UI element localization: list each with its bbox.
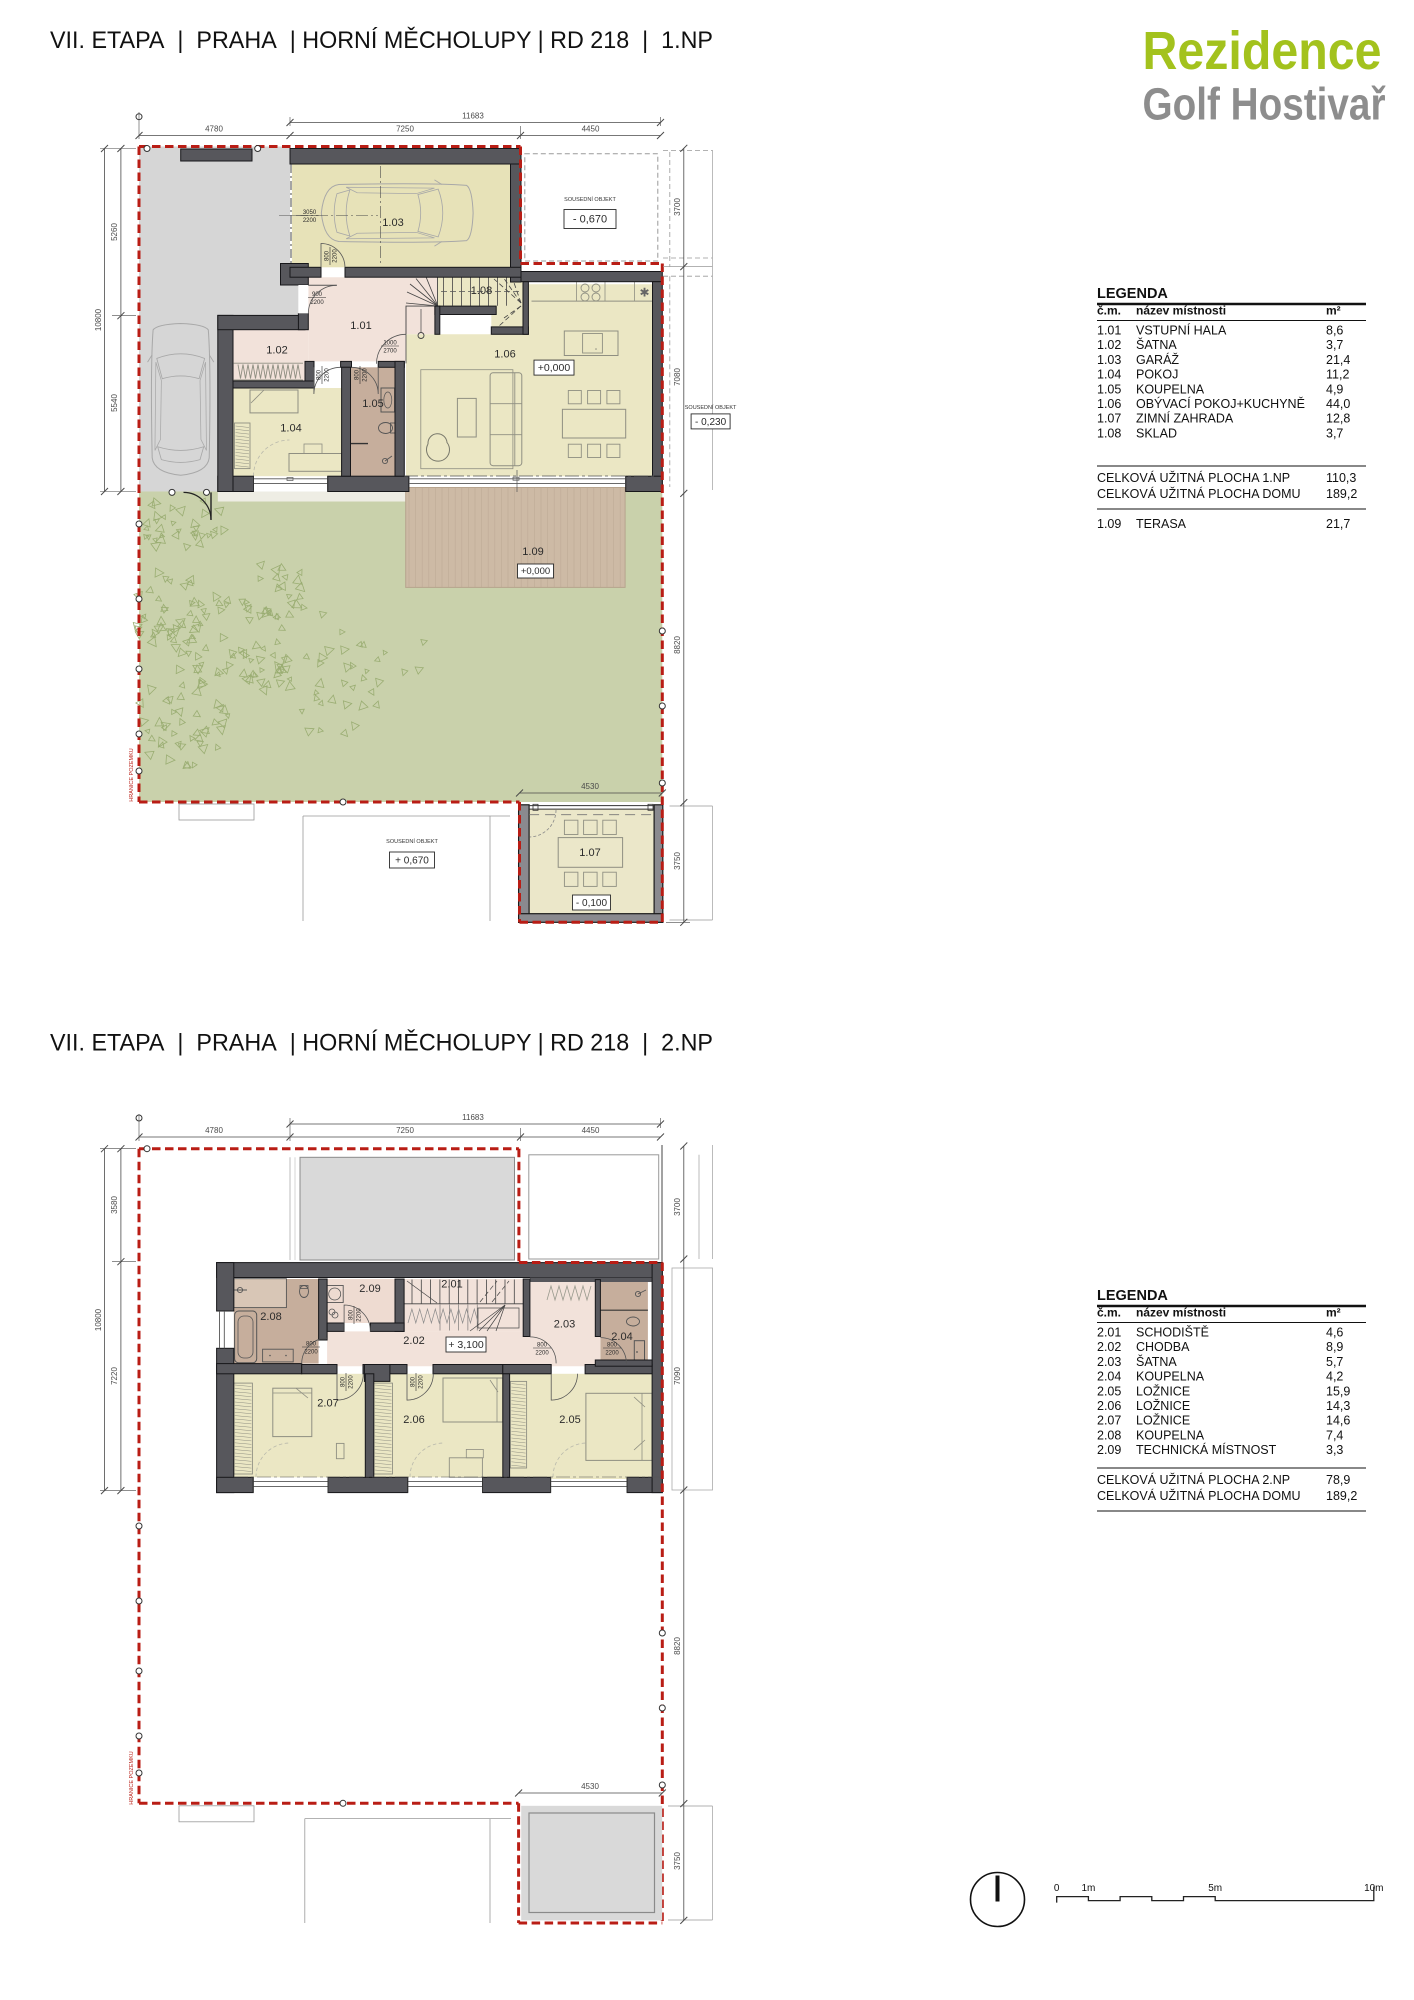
svg-text:2200: 2200 [333,249,339,263]
svg-text:21,7: 21,7 [1326,517,1350,531]
svg-text:5m: 5m [1208,1883,1222,1894]
svg-text:7250: 7250 [396,1126,414,1135]
svg-text:11683: 11683 [462,1113,484,1122]
svg-text:SOUSEDNÍ OBJEKT: SOUSEDNÍ OBJEKT [564,196,616,203]
svg-text:2.01: 2.01 [1097,1326,1121,1340]
svg-text:CELKOVÁ UŽITNÁ PLOCHA 2.NP: CELKOVÁ UŽITNÁ PLOCHA 2.NP [1097,1472,1290,1487]
svg-text:1.06: 1.06 [494,349,515,361]
svg-text:CHODBA: CHODBA [1136,1340,1190,1354]
svg-text:2.09: 2.09 [359,1283,380,1295]
svg-text:2200: 2200 [349,1375,355,1389]
svg-text:KOUPELNA: KOUPELNA [1136,382,1205,396]
svg-text:2.03: 2.03 [554,1319,575,1331]
svg-text:2.06: 2.06 [1097,1399,1121,1413]
svg-text:2.05: 2.05 [1097,1384,1121,1398]
svg-text:2200: 2200 [304,1350,318,1356]
svg-text:3,3: 3,3 [1326,1443,1343,1457]
svg-text:1.01: 1.01 [1097,324,1121,338]
svg-text:1.02: 1.02 [266,345,287,357]
svg-text:800: 800 [341,1376,347,1387]
svg-text:4,6: 4,6 [1326,1326,1343,1340]
svg-text:8,6: 8,6 [1326,324,1343,338]
svg-text:2200: 2200 [605,1351,619,1357]
svg-text:1.04: 1.04 [1097,368,1121,382]
svg-text:4530: 4530 [581,1782,599,1791]
svg-text:HRANICE POZEMKU: HRANICE POZEMKU [129,1751,135,1805]
svg-text:CELKOVÁ UŽITNÁ PLOCHA DOMU: CELKOVÁ UŽITNÁ PLOCHA DOMU [1097,1488,1301,1503]
svg-text:KOUPELNA: KOUPELNA [1136,1428,1205,1442]
svg-text:2.03: 2.03 [1097,1355,1121,1369]
svg-text:SKLAD: SKLAD [1136,426,1177,440]
svg-text:KOUPELNA: KOUPELNA [1136,1370,1205,1384]
svg-text:4,2: 4,2 [1326,1370,1343,1384]
svg-text:1.05: 1.05 [362,398,383,410]
svg-text:800: 800 [325,250,331,261]
svg-text:800: 800 [349,1309,355,1320]
svg-text:14,6: 14,6 [1326,1414,1350,1428]
svg-text:+0,000: +0,000 [521,566,550,577]
svg-text:5,7: 5,7 [1326,1355,1343,1369]
svg-text:ŠATNA: ŠATNA [1136,1354,1177,1369]
svg-text:4780: 4780 [205,125,223,134]
svg-text:2.05: 2.05 [559,1414,580,1426]
svg-text:VII. ETAPA | PRAHA | HORNÍ: VII. ETAPA | PRAHA | HORNÍ MĚCHOLUPY | R… [50,1030,713,1057]
svg-text:- 0,230: - 0,230 [695,417,727,428]
svg-text:m²: m² [1326,1306,1341,1320]
svg-text:č.m.: č.m. [1097,304,1121,318]
svg-text:800: 800 [537,1343,548,1349]
svg-text:800: 800 [411,1376,417,1387]
svg-text:2200: 2200 [357,1308,363,1322]
svg-text:GARÁŽ: GARÁŽ [1136,352,1179,367]
svg-text:2200: 2200 [419,1375,425,1389]
svg-text:8,9: 8,9 [1326,1340,1343,1354]
svg-text:3700: 3700 [673,1198,682,1216]
svg-text:✱: ✱ [639,286,649,300]
svg-text:VSTUPNÍ HALA: VSTUPNÍ HALA [1136,323,1227,338]
svg-text:14,3: 14,3 [1326,1399,1350,1413]
svg-text:4450: 4450 [582,1126,600,1135]
svg-text:TECHNICKÁ MÍSTNOST: TECHNICKÁ MÍSTNOST [1136,1442,1277,1457]
svg-text:2.02: 2.02 [1097,1340,1121,1354]
svg-text:1.02: 1.02 [1097,338,1121,352]
svg-text:1.03: 1.03 [1097,353,1121,367]
svg-text:LOŽNICE: LOŽNICE [1136,1413,1190,1428]
svg-text:900: 900 [312,292,323,298]
svg-text:2.04: 2.04 [611,1331,632,1343]
svg-text:č.m.: č.m. [1097,1306,1121,1320]
svg-text:ŠATNA: ŠATNA [1136,337,1177,352]
svg-text:1.07: 1.07 [579,847,600,859]
svg-text:- 0,100: - 0,100 [576,898,608,909]
svg-text:LOŽNICE: LOŽNICE [1136,1383,1190,1398]
svg-text:4,9: 4,9 [1326,382,1343,396]
svg-text:+ 0,670: + 0,670 [395,855,429,866]
svg-text:SOUSEDNÍ OBJEKT: SOUSEDNÍ OBJEKT [386,838,438,845]
svg-text:2200: 2200 [310,300,324,306]
svg-text:11,2: 11,2 [1326,368,1349,382]
svg-text:3050: 3050 [303,210,317,216]
svg-text:SOUSEDNÍ OBJEKT: SOUSEDNÍ OBJEKT [685,404,737,411]
svg-text:78,9: 78,9 [1326,1473,1350,1487]
svg-text:4530: 4530 [581,782,599,791]
svg-text:1.08: 1.08 [1097,426,1121,440]
svg-text:SCHODIŠTĚ: SCHODIŠTĚ [1136,1325,1209,1340]
svg-text:800: 800 [317,369,323,380]
svg-text:7090: 7090 [673,1367,682,1385]
svg-text:LEGENDA: LEGENDA [1097,1288,1168,1304]
svg-text:8820: 8820 [673,636,682,654]
svg-text:15,9: 15,9 [1326,1384,1350,1398]
svg-text:1.04: 1.04 [280,423,301,435]
svg-text:VII. ETAPA | PRAHA | HORNÍ: VII. ETAPA | PRAHA | HORNÍ MĚCHOLUPY | R… [50,27,713,54]
svg-text:m²: m² [1326,304,1341,318]
svg-text:CELKOVÁ UŽITNÁ PLOCHA DOMU: CELKOVÁ UŽITNÁ PLOCHA DOMU [1097,486,1301,501]
svg-text:7220: 7220 [110,1367,119,1385]
svg-text:5540: 5540 [110,394,119,412]
svg-text:CELKOVÁ UŽITNÁ PLOCHA 1.NP: CELKOVÁ UŽITNÁ PLOCHA 1.NP [1097,470,1290,485]
svg-text:800: 800 [607,1343,618,1349]
svg-text:2.01: 2.01 [441,1279,462,1291]
svg-text:2200: 2200 [535,1351,549,1357]
svg-text:1.05: 1.05 [1097,382,1121,396]
svg-text:11683: 11683 [462,112,484,121]
svg-text:1.07: 1.07 [1097,412,1121,426]
svg-text:Golf Hostivař: Golf Hostivař [1143,79,1386,130]
svg-text:21,4: 21,4 [1326,353,1350,367]
svg-text:3750: 3750 [673,852,682,870]
svg-text:7250: 7250 [396,125,414,134]
svg-text:2.06: 2.06 [403,1414,424,1426]
svg-text:2200: 2200 [363,368,369,382]
svg-text:3,7: 3,7 [1326,338,1343,352]
svg-text:POKOJ: POKOJ [1136,368,1178,382]
svg-text:2.04: 2.04 [1097,1370,1121,1384]
svg-text:+0,000: +0,000 [538,362,571,374]
svg-text:2200: 2200 [325,368,331,382]
svg-text:1.06: 1.06 [1097,397,1121,411]
svg-text:10800: 10800 [94,308,103,331]
svg-text:7,4: 7,4 [1326,1428,1343,1442]
svg-text:2.07: 2.07 [1097,1414,1121,1428]
svg-text:800: 800 [306,1342,317,1348]
svg-text:3,7: 3,7 [1326,426,1343,440]
svg-text:189,2: 189,2 [1326,487,1357,501]
svg-text:110,3: 110,3 [1326,471,1356,485]
svg-text:TERASA: TERASA [1136,517,1187,531]
svg-text:OBÝVACÍ POKOJ+KUCHYNĚ: OBÝVACÍ POKOJ+KUCHYNĚ [1136,396,1305,411]
svg-text:0: 0 [1054,1883,1060,1894]
svg-text:800: 800 [355,369,361,380]
svg-text:2700: 2700 [383,349,397,355]
svg-text:2.02: 2.02 [403,1335,424,1347]
svg-text:1.03: 1.03 [382,217,403,229]
svg-text:44,0: 44,0 [1326,397,1350,411]
svg-text:189,2: 189,2 [1326,1489,1357,1503]
svg-text:+ 3,100: + 3,100 [448,1339,483,1351]
svg-text:1.09: 1.09 [522,546,543,558]
svg-text:1000: 1000 [383,341,397,347]
svg-text:1.08: 1.08 [471,285,492,297]
svg-text:ZIMNÍ ZAHRADA: ZIMNÍ ZAHRADA [1136,411,1234,426]
svg-text:1m: 1m [1081,1883,1095,1894]
svg-text:- 0,670: - 0,670 [573,214,607,226]
svg-text:5260: 5260 [110,223,119,241]
svg-text:10m: 10m [1364,1883,1383,1894]
svg-text:2.07: 2.07 [317,1398,338,1410]
svg-text:LOŽNICE: LOŽNICE [1136,1398,1190,1413]
svg-text:1.09: 1.09 [1097,517,1121,531]
svg-text:název místnosti: název místnosti [1136,304,1226,318]
svg-text:2.09: 2.09 [1097,1443,1121,1457]
svg-text:název místnosti: název místnosti [1136,1306,1226,1320]
svg-text:3580: 3580 [110,1196,119,1214]
svg-text:HRANICE POZEMKU: HRANICE POZEMKU [129,748,135,802]
svg-text:7080: 7080 [673,368,682,386]
svg-text:4780: 4780 [205,1126,223,1135]
svg-text:LEGENDA: LEGENDA [1097,286,1168,302]
svg-text:3750: 3750 [673,1852,682,1870]
svg-text:4450: 4450 [582,125,600,134]
svg-text:3700: 3700 [673,198,682,216]
svg-text:10800: 10800 [94,1308,103,1331]
svg-text:8820: 8820 [673,1637,682,1655]
svg-text:12,8: 12,8 [1326,412,1350,426]
svg-text:2.08: 2.08 [260,1311,281,1323]
svg-text:2200: 2200 [303,218,317,224]
svg-text:2.08: 2.08 [1097,1428,1121,1442]
svg-text:1.01: 1.01 [350,320,371,332]
svg-text:Rezidence: Rezidence [1143,21,1382,81]
